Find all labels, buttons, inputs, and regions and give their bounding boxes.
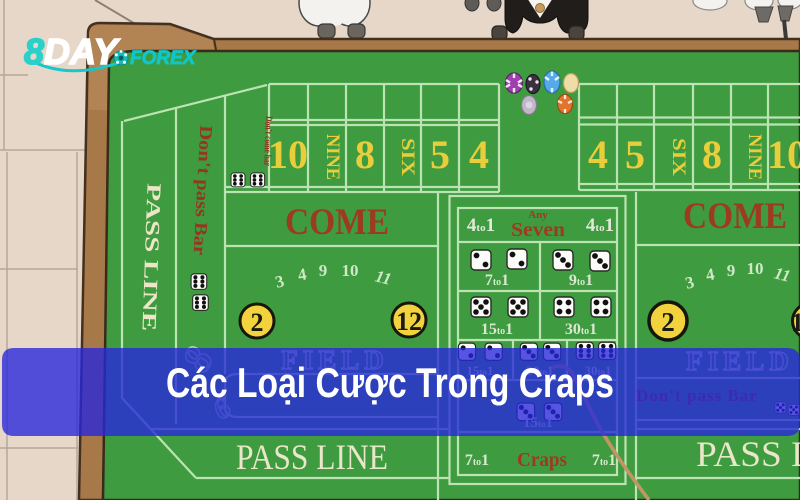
svg-text:8: 8 — [355, 132, 375, 177]
svg-text:10: 10 — [747, 259, 764, 278]
svg-text:SIX: SIX — [397, 138, 418, 176]
svg-text:8: 8 — [702, 132, 722, 177]
svg-text:4: 4 — [469, 132, 489, 177]
svg-text:9: 9 — [727, 261, 736, 280]
svg-text:Các Loại Cược Trong Craps: Các Loại Cược Trong Craps — [166, 359, 614, 406]
svg-text:12: 12 — [396, 307, 422, 336]
svg-text:5: 5 — [430, 132, 450, 177]
svg-text:10: 10 — [268, 132, 308, 177]
svg-text:4: 4 — [588, 132, 608, 177]
svg-text:PASS LINE: PASS LINE — [696, 434, 800, 474]
svg-text:Seven: Seven — [511, 219, 565, 241]
svg-text:2: 2 — [251, 308, 264, 337]
svg-text:12: 12 — [791, 308, 800, 337]
svg-text:COME: COME — [683, 196, 787, 237]
svg-text:PASS LINE: PASS LINE — [236, 437, 388, 477]
svg-text:5: 5 — [625, 132, 645, 177]
svg-text:NINE: NINE — [744, 134, 765, 180]
svg-text:2: 2 — [661, 307, 675, 337]
svg-text:FOREX: FOREX — [130, 48, 197, 69]
svg-text:8DAY: 8DAY — [24, 31, 120, 72]
svg-text:Craps: Craps — [517, 449, 567, 471]
svg-text:SIX: SIX — [668, 138, 689, 176]
svg-text:9: 9 — [319, 261, 328, 280]
svg-text:COME: COME — [285, 202, 389, 243]
svg-text:NINE: NINE — [322, 134, 343, 180]
svg-text:10: 10 — [767, 132, 800, 177]
svg-text:10: 10 — [342, 261, 359, 280]
